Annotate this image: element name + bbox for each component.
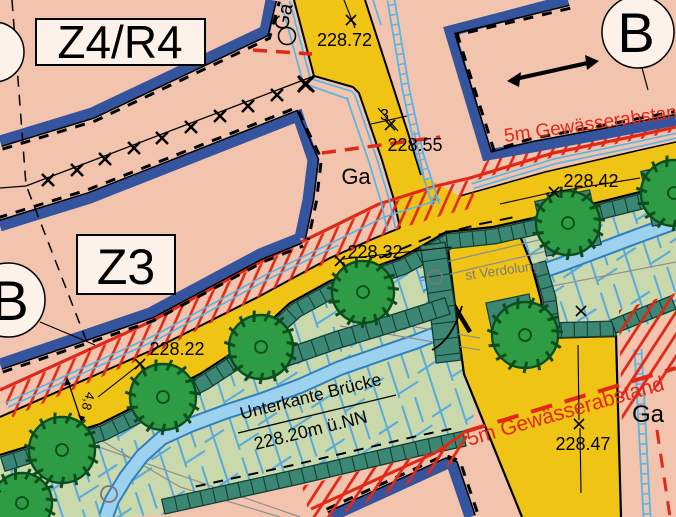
svg-text:B: B <box>0 269 29 332</box>
svg-text:228.55: 228.55 <box>387 135 442 155</box>
svg-text:Ga: Ga <box>341 164 371 189</box>
svg-text:228.32: 228.32 <box>347 242 402 262</box>
svg-text:228.47: 228.47 <box>555 434 610 454</box>
svg-text:B: B <box>617 1 654 64</box>
svg-text:228.72: 228.72 <box>317 30 372 50</box>
svg-text:Z3: Z3 <box>97 239 155 295</box>
svg-text:Ga: Ga <box>632 401 665 428</box>
svg-text:Z4/R4: Z4/R4 <box>57 16 182 68</box>
svg-text:228.42: 228.42 <box>563 171 618 191</box>
svg-text:3: 3 <box>380 107 389 124</box>
svg-text:228.22: 228.22 <box>149 339 204 359</box>
